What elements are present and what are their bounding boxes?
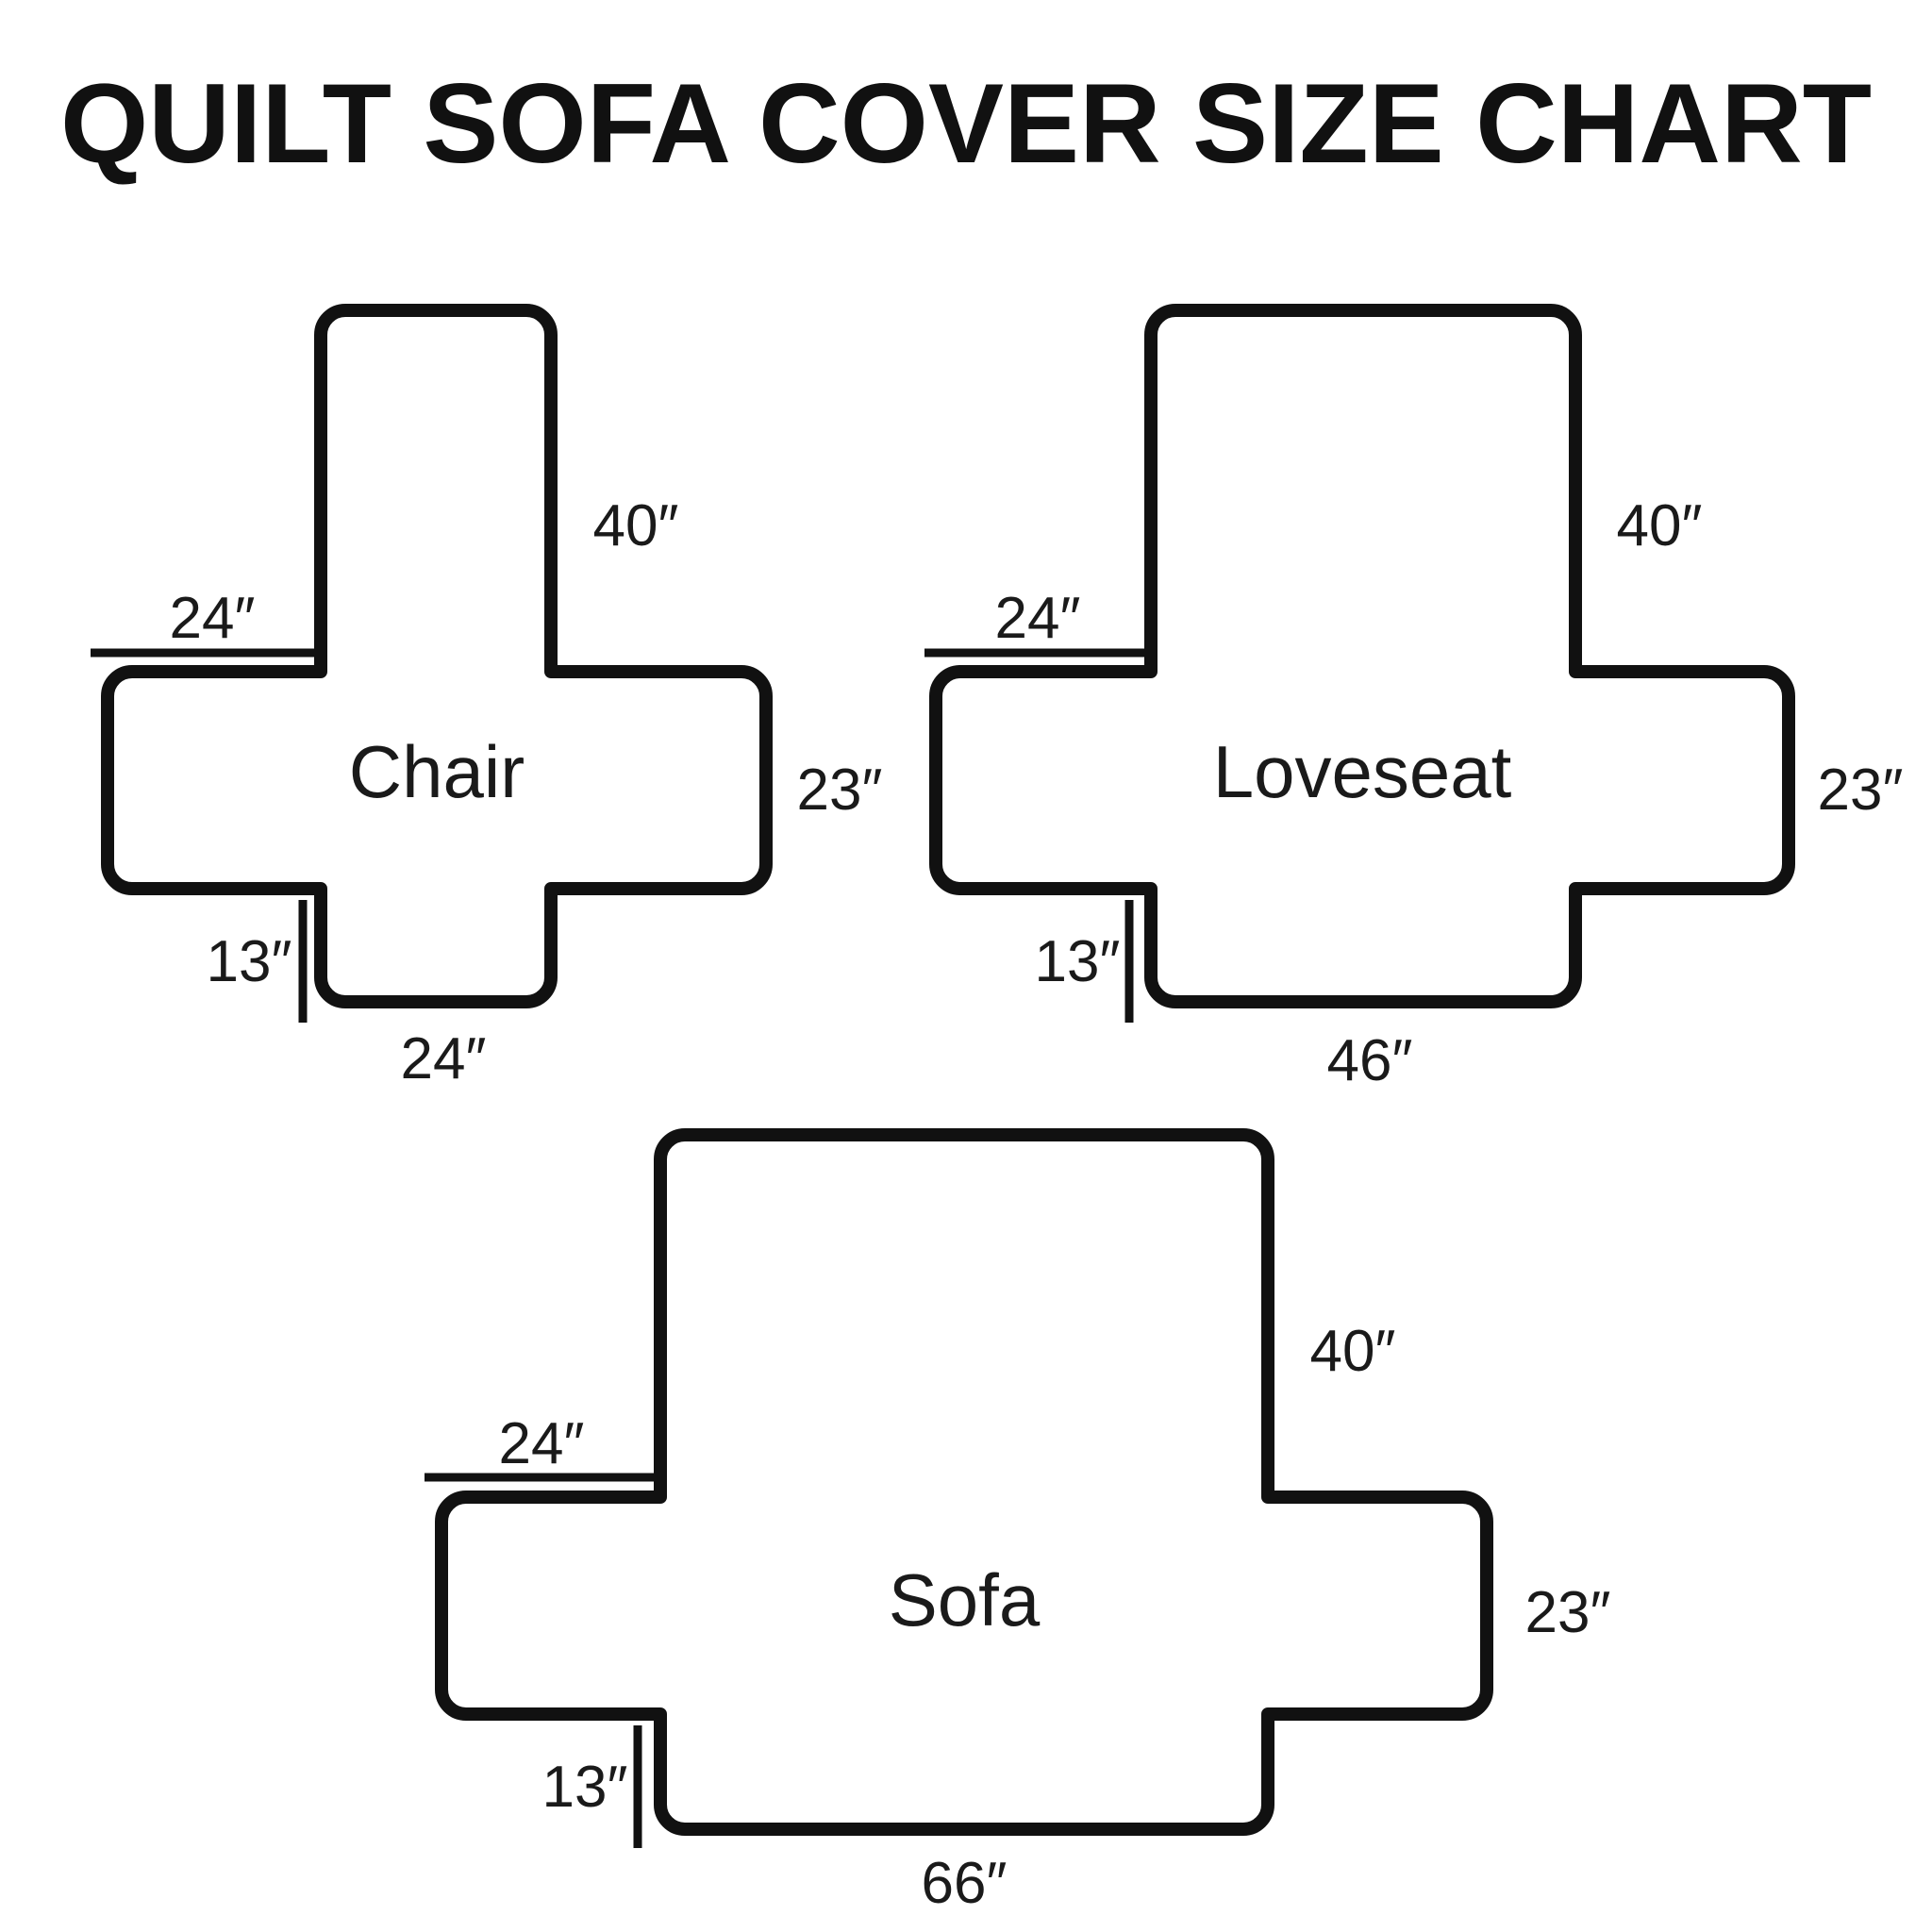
sofa-bottom-width-label: 66″ — [922, 1851, 1008, 1916]
loveseat-name-label: Loveseat — [1213, 730, 1512, 813]
loveseat-back-height-label: 40″ — [1617, 493, 1703, 558]
chair-side-height-label: 23″ — [797, 758, 883, 823]
chair-diagram: 40″ 24″ 23″ 13″ 24″ Chair — [91, 310, 882, 1091]
sofa-cover-outline — [441, 1135, 1487, 1829]
loveseat-bottom-width-label: 46″ — [1327, 1028, 1413, 1093]
size-chart-canvas: QUILT SOFA COVER SIZE CHART 40″ 24″ 23″ … — [0, 0, 1932, 1932]
page-title: QUILT SOFA COVER SIZE CHART — [60, 60, 1872, 187]
sofa-arm-top-label: 24″ — [499, 1411, 585, 1476]
loveseat-arm-top-label: 24″ — [995, 586, 1081, 651]
chair-arm-top-label: 24″ — [170, 586, 256, 651]
sofa-back-height-label: 40″ — [1310, 1319, 1396, 1384]
size-chart-page: QUILT SOFA COVER SIZE CHART 40″ 24″ 23″ … — [0, 0, 1932, 1932]
sofa-side-height-label: 23″ — [1525, 1580, 1611, 1645]
chair-bottom-width-label: 24″ — [401, 1026, 487, 1091]
chair-name-label: Chair — [349, 730, 525, 813]
loveseat-side-height-label: 23″ — [1818, 758, 1904, 823]
sofa-name-label: Sofa — [889, 1558, 1041, 1641]
chair-flap-height-label: 13″ — [207, 929, 292, 994]
loveseat-flap-height-label: 13″ — [1035, 929, 1121, 994]
chair-back-height-label: 40″ — [593, 493, 679, 558]
loveseat-diagram: 40″ 24″ 23″ 13″ 46″ Loveseat — [924, 310, 1903, 1093]
sofa-diagram: 40″ 24″ 23″ 13″ 66″ Sofa — [425, 1135, 1610, 1916]
sofa-flap-height-label: 13″ — [542, 1755, 628, 1820]
